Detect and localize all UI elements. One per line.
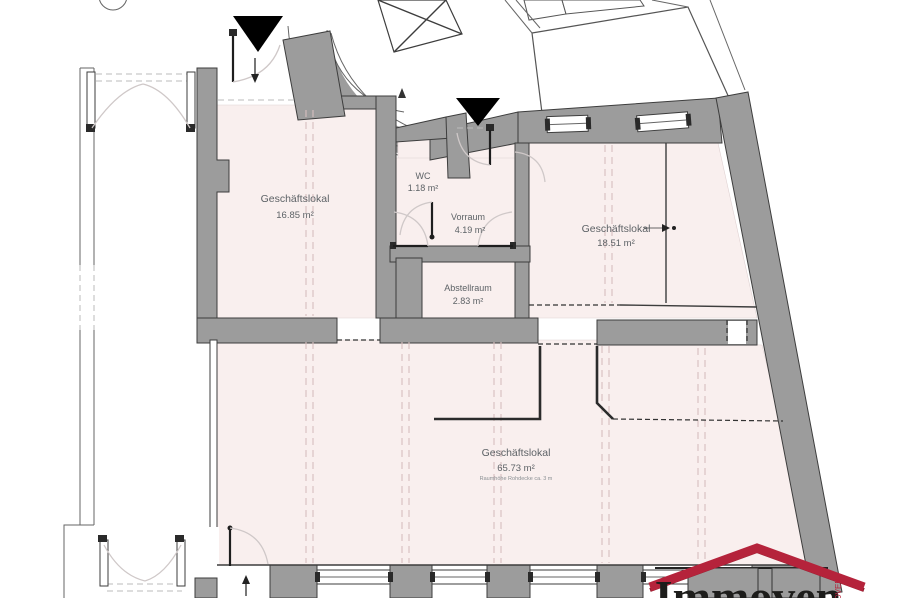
room-label: Geschäftslokal: [261, 193, 330, 205]
window-icon: [430, 570, 490, 584]
floor-plan: Geschäftslokal 16.85 m² WC 1.18 m² Vorra…: [0, 0, 897, 598]
room-label: Vorraum: [451, 212, 485, 222]
door-swing-icon: [143, 84, 190, 128]
room-area: 18.51 m²: [597, 238, 635, 249]
room-area: 65.73 m²: [497, 463, 535, 474]
room-note: Raumhöhe Rohdecke ca. 3 m: [480, 476, 553, 482]
window-icon: [545, 115, 592, 133]
window-icon: [528, 570, 600, 584]
door-swing-icon: [92, 84, 143, 128]
room-label: Abstellraum: [444, 283, 492, 293]
door-swing-icon: [104, 545, 145, 581]
neighbour-structure: [505, 0, 745, 113]
room-label: Geschäftslokal: [482, 447, 551, 459]
entrance-double-door-top: [86, 72, 195, 132]
room-area: 16.85 m²: [276, 210, 314, 221]
stair-direction-arrow-icon: [398, 88, 406, 98]
entrance-double-door-bottom: [98, 535, 185, 591]
door-swing-icon: [145, 545, 181, 581]
room-area: 1.18 m²: [408, 183, 439, 193]
room-label: Geschäftslokal: [582, 223, 651, 235]
direction-arrow-icon: [251, 74, 259, 83]
room-area: 4.19 m²: [455, 225, 486, 235]
logo-vertical-text: IMMOVEN: [834, 578, 843, 598]
room-label: WC: [416, 171, 431, 181]
direction-arrow-icon: [242, 575, 250, 584]
window-icon: [315, 570, 393, 584]
left-facade: [64, 68, 94, 598]
logo-text: Immoven: [655, 571, 842, 598]
elevator-shaft-icon: [378, 0, 462, 52]
entrance-arrow-icon: [233, 16, 283, 52]
detail-circle: [99, 0, 127, 10]
room-area: 2.83 m²: [453, 296, 484, 306]
